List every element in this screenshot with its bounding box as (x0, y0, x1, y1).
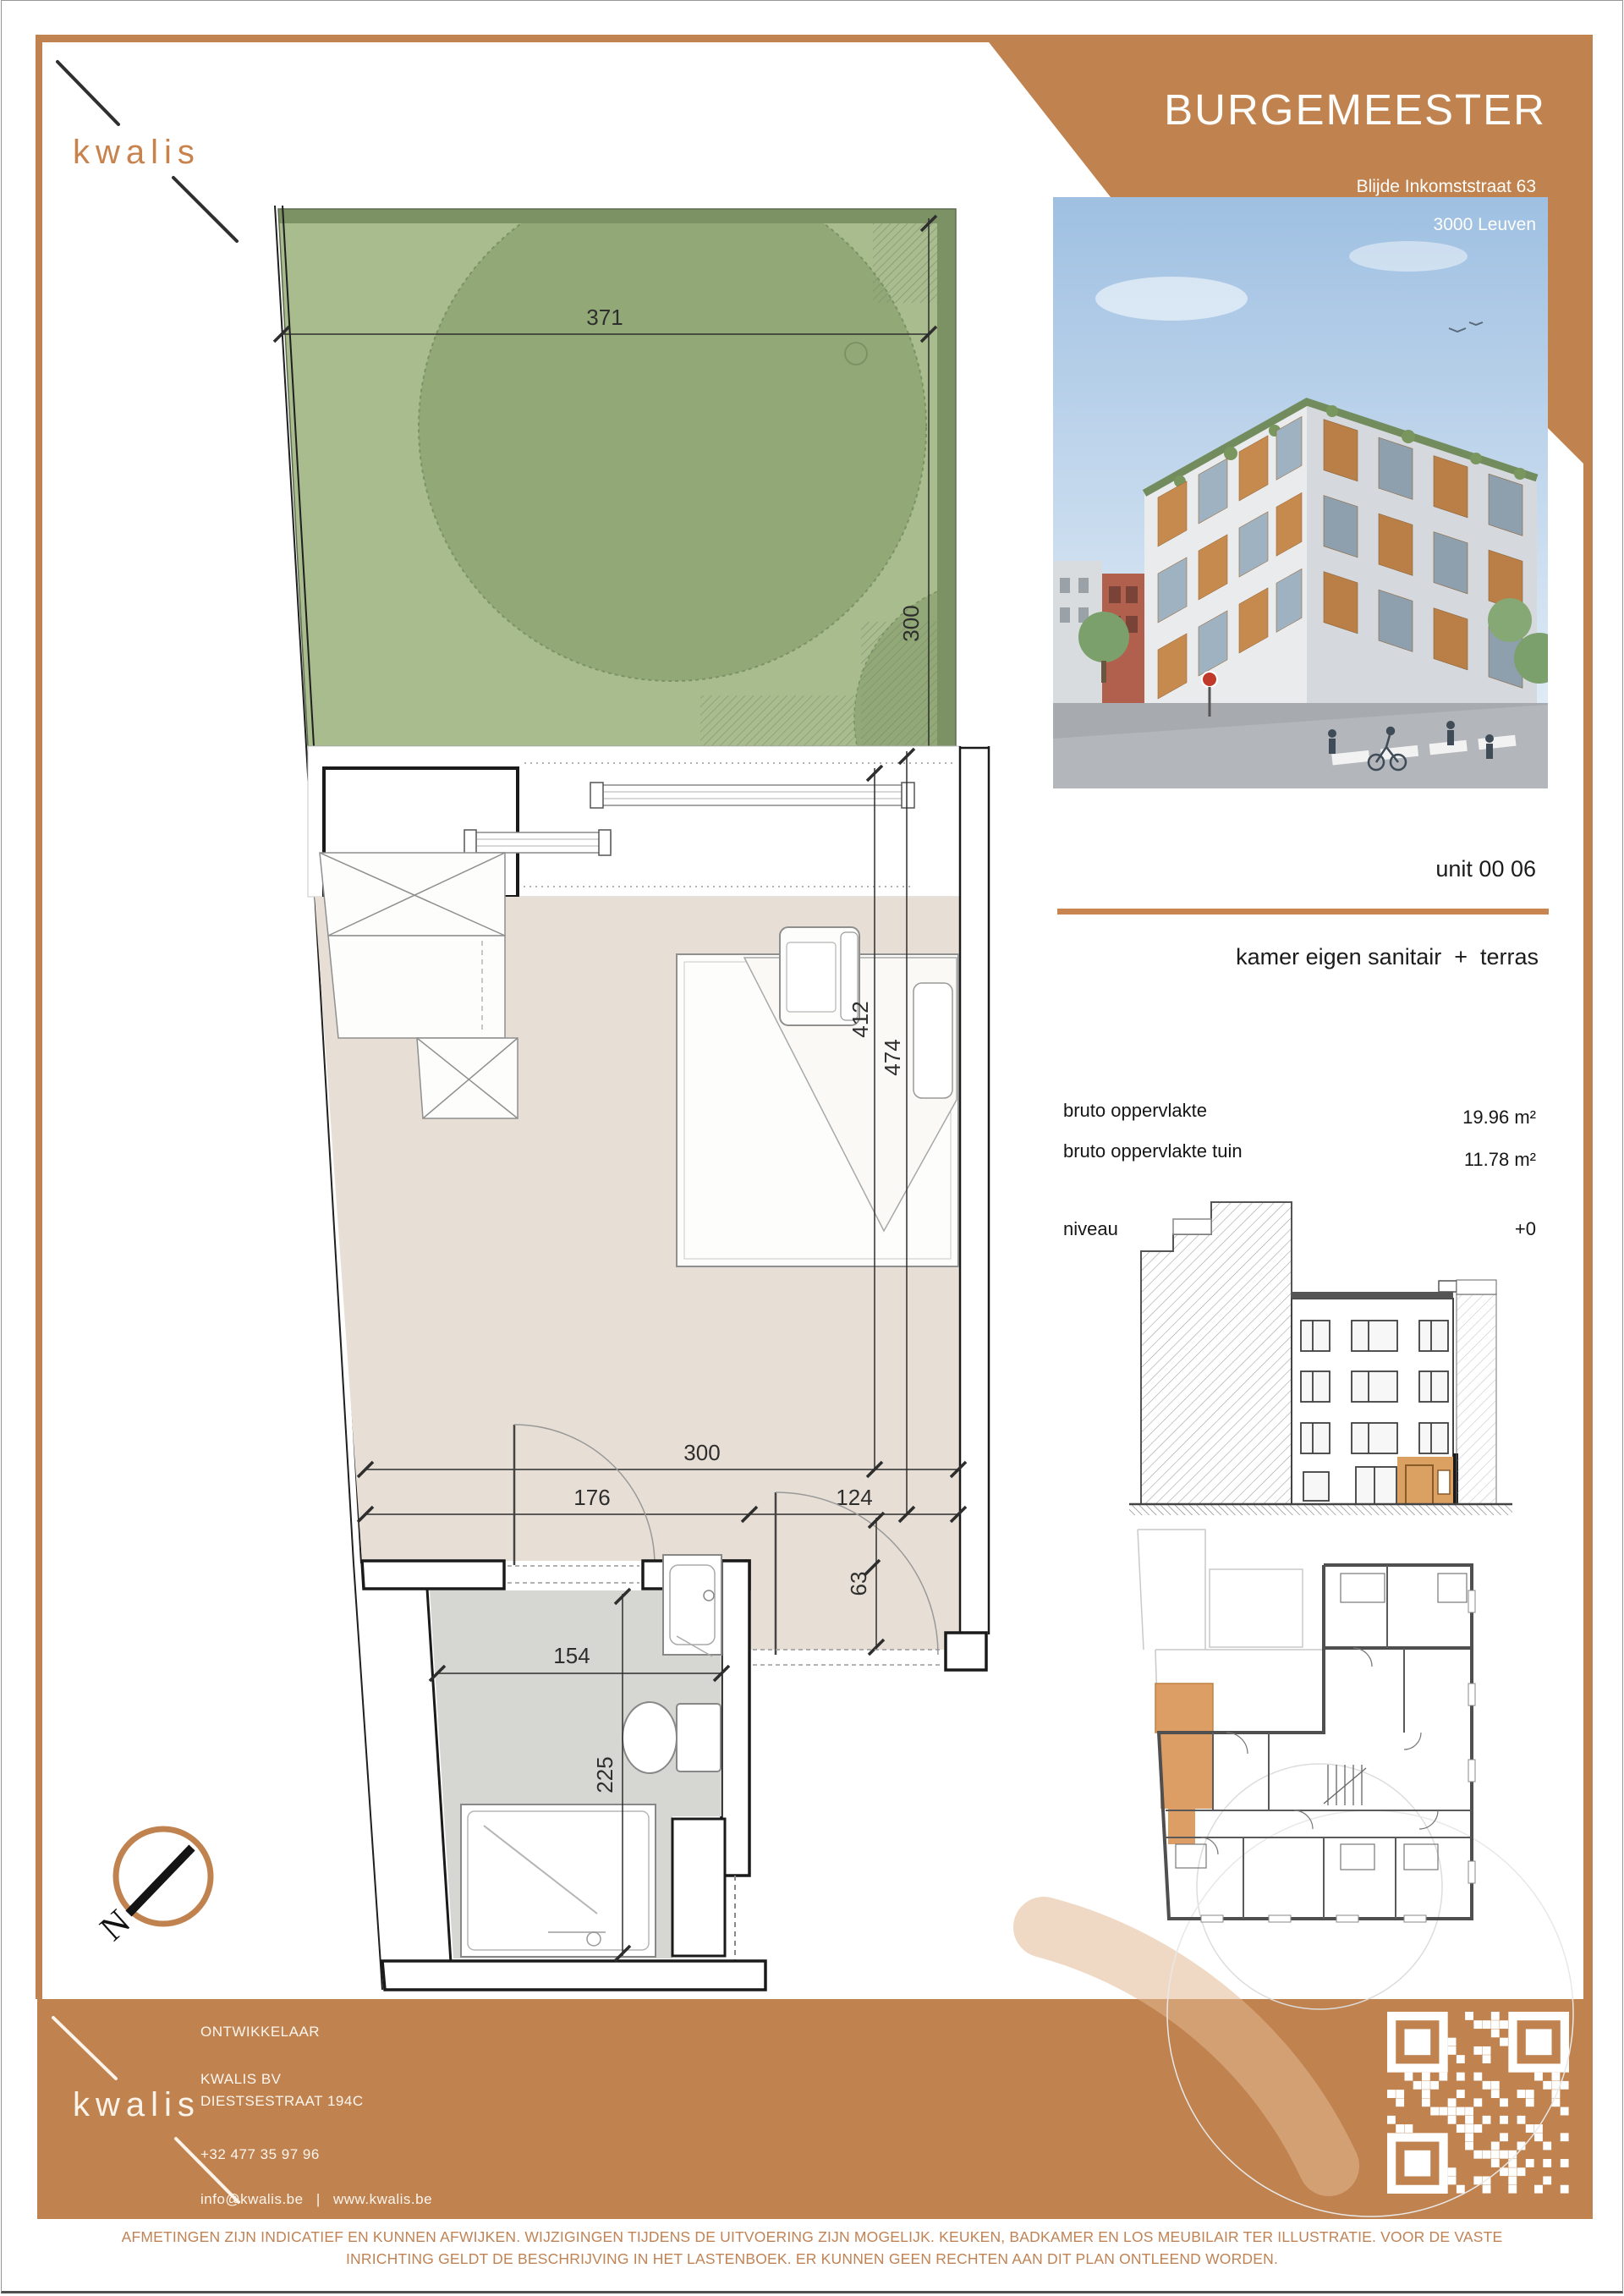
floor-plan: 371 300 (274, 173, 1133, 1990)
facade-windows (1301, 1321, 1448, 1504)
developer-website: www.kwalis.be (333, 2191, 432, 2207)
dim-label: 371 (586, 305, 623, 330)
separator: | (316, 2191, 321, 2207)
svg-text:176: 176 (573, 1485, 610, 1510)
dim-bath-depth (615, 1589, 630, 1961)
kwalis-logo-band: kwalis (73, 2086, 200, 2124)
wall-pier (946, 1633, 986, 1670)
dim-split (358, 1507, 966, 1522)
dim-entry (869, 1513, 884, 1655)
bed (677, 954, 958, 1266)
dim-room-depth (899, 749, 914, 1522)
elevation-drawing (1129, 1202, 1512, 1515)
room-floor (315, 897, 960, 1650)
bathroom-floor (430, 1590, 721, 1958)
dim-bed-zone (867, 766, 882, 1477)
level-value: +0 (1515, 1218, 1536, 1240)
entry-door (776, 1492, 938, 1655)
sliding-panel-upper (590, 783, 914, 808)
developer-email: info@kwalis.be (200, 2191, 304, 2207)
svg-text:474: 474 (880, 1039, 905, 1075)
stairs (1324, 1765, 1366, 1805)
dim-room-width (358, 1462, 966, 1477)
north-compass: N (93, 1829, 211, 1948)
svg-text:412: 412 (848, 1001, 873, 1037)
room-right-wall (960, 746, 989, 1634)
north-label: N (93, 1903, 138, 1948)
disclaimer-line2: INRICHTING GELDT DE BESCHRIJVING IN HET … (0, 2250, 1624, 2268)
neighbor-building (1141, 1202, 1292, 1504)
area-value: 19.96 m² (1462, 1107, 1536, 1129)
plan-sheet-page: 371 300 (0, 0, 1624, 2296)
svg-text:300: 300 (683, 1440, 720, 1465)
highlighted-unit-elevation (1397, 1453, 1458, 1504)
svg-text:124: 124 (836, 1485, 872, 1510)
developer-company: KWALIS BV (200, 2071, 282, 2088)
blanket (744, 958, 957, 1231)
sink (663, 1555, 721, 1656)
toilet (623, 1702, 721, 1773)
shower (461, 1804, 656, 1957)
dim-garden-depth (921, 216, 936, 915)
qr-code (1387, 2012, 1569, 2194)
neighbor-right (1457, 1294, 1496, 1504)
garden-area-label: bruto oppervlakte tuin (1063, 1140, 1243, 1162)
level-label: niveau (1063, 1218, 1118, 1240)
developer-phone: +32 477 35 97 96 (200, 2146, 320, 2163)
unit-highlight (1155, 1684, 1213, 1844)
project-title: BURGEMEESTER (1164, 85, 1546, 135)
pillow (913, 983, 952, 1098)
building-photo (1053, 197, 1548, 788)
dim-bath-width (430, 1666, 729, 1681)
garden (278, 173, 1133, 859)
garden-area-value: 11.78 m² (1464, 1149, 1536, 1171)
address-line2: 3000 Leuven (1357, 206, 1536, 244)
wardrobe (320, 853, 518, 1118)
svg-text:63: 63 (846, 1572, 871, 1596)
bathroom: 154 225 (362, 1555, 765, 1990)
developer-contact-line: info@kwalis.be | www.kwalis.be (200, 2191, 432, 2208)
svg-text:225: 225 (592, 1756, 617, 1793)
sliding-panel-lower (464, 830, 611, 855)
site-boundary (275, 206, 382, 1990)
tree-center-marker (845, 343, 867, 365)
developer-heading: ONTWIKKELAAR (200, 2024, 320, 2041)
dim-label: 300 (898, 605, 924, 641)
svg-text:154: 154 (553, 1643, 590, 1668)
armchair (780, 927, 859, 1025)
hall (753, 1633, 986, 1670)
address-line1: Blijde Inkomststraat 63 (1357, 168, 1536, 206)
unit-description: kamer eigen sanitair + terras (1236, 944, 1539, 970)
wall-block (324, 768, 518, 897)
project-address: Blijde Inkomststraat 63 3000 Leuven (1357, 168, 1536, 244)
kwalis-logo-top: kwalis (73, 134, 200, 172)
dim-garden-width (274, 327, 936, 342)
disclaimer-line1: AFMETINGEN ZIJN INDICATIEF EN KUNNEN AFW… (0, 2228, 1624, 2246)
developer-street: DIESTSESTRAAT 194C (200, 2093, 364, 2110)
shaft (672, 1819, 725, 1956)
unit-number: unit 00 06 (1435, 856, 1536, 882)
area-label: bruto oppervlakte (1063, 1100, 1207, 1122)
terrace-window (308, 746, 960, 897)
bathroom-door (514, 1425, 655, 1565)
facade (1292, 1299, 1453, 1504)
unit-divider (1057, 909, 1549, 915)
